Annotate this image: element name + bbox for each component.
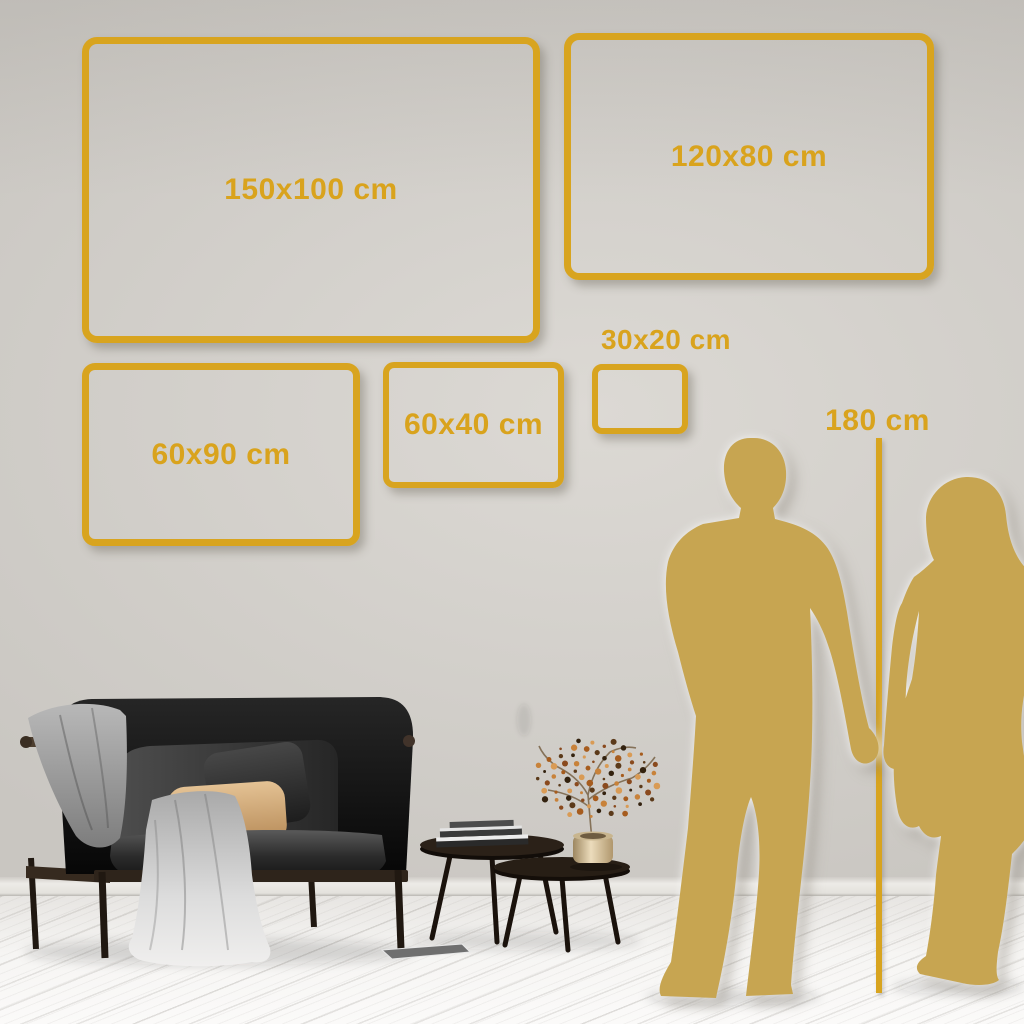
floor-magazine bbox=[382, 944, 470, 959]
sofa-illustration bbox=[20, 697, 470, 966]
sofa-dowel-knob bbox=[20, 736, 32, 748]
couple-silhouette bbox=[660, 438, 1024, 998]
wall-smudge bbox=[517, 704, 531, 736]
size-guide-scene: 150x100 cm 120x80 cm 60x90 cm 60x40 cm 3… bbox=[0, 0, 1024, 1024]
scene-illustration bbox=[0, 0, 1024, 1024]
sofa-leg bbox=[102, 872, 105, 958]
plant-berries bbox=[536, 739, 660, 818]
vase-shadow bbox=[570, 863, 622, 871]
man-silhouette bbox=[660, 438, 879, 998]
sofa-leg bbox=[398, 870, 401, 949]
sofa-blanket bbox=[28, 704, 127, 848]
sofa-dowel-knob bbox=[403, 735, 415, 747]
woman-silhouette bbox=[883, 477, 1024, 985]
table-books bbox=[436, 819, 529, 847]
